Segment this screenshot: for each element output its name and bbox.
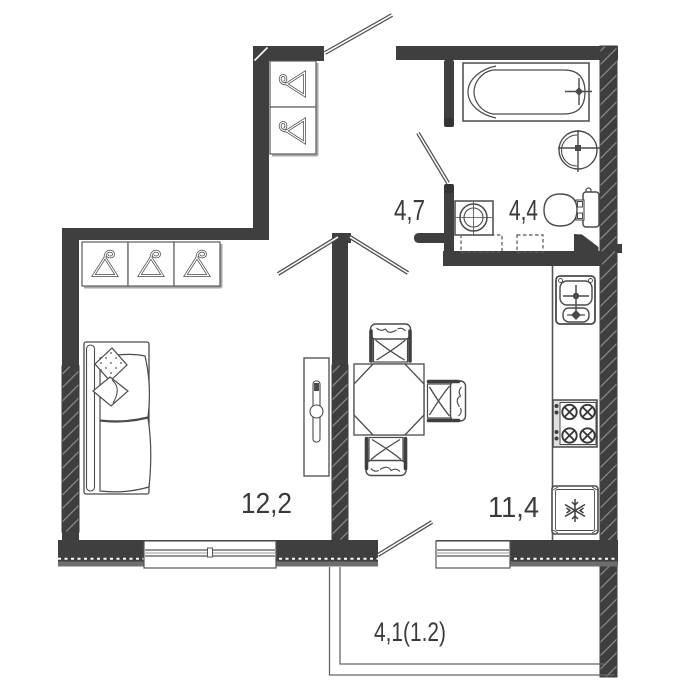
svg-text:4,7: 4,7 (394, 195, 425, 227)
svg-text:4,1(1.2): 4,1(1.2) (374, 617, 446, 647)
svg-text:11,4: 11,4 (488, 492, 539, 524)
svg-text:4,4: 4,4 (509, 195, 538, 227)
svg-text:12,2: 12,2 (241, 488, 292, 520)
